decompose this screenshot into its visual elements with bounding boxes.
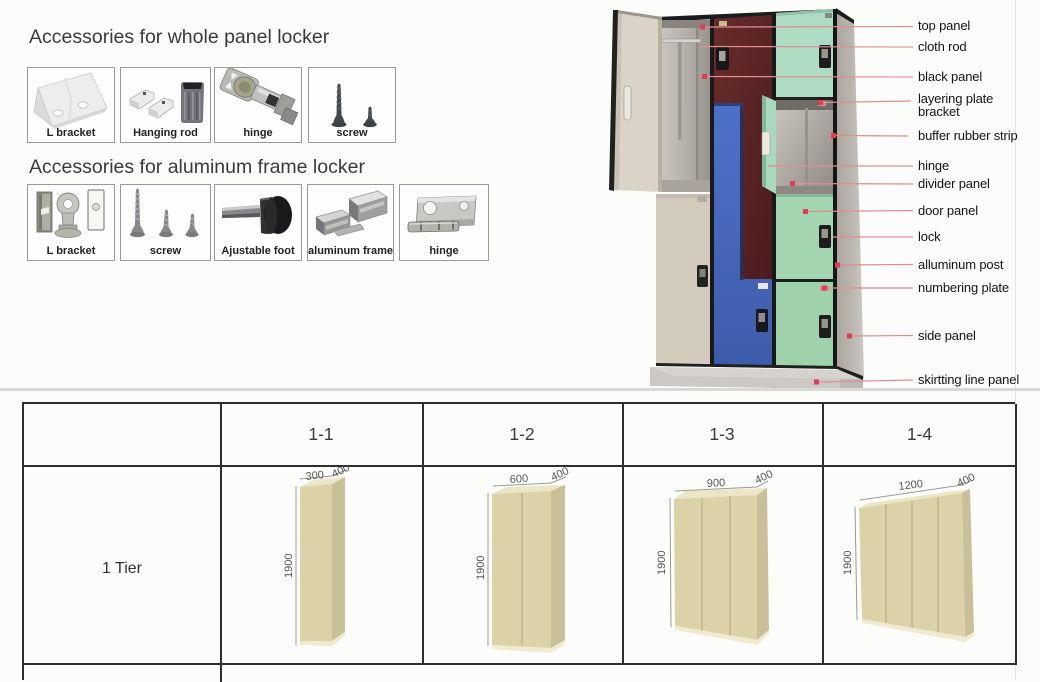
svg-text:1900: 1900 bbox=[842, 551, 854, 575]
svg-text:1900: 1900 bbox=[283, 554, 295, 578]
svg-text:1900: 1900 bbox=[656, 551, 668, 575]
svg-text:400: 400 bbox=[549, 465, 571, 484]
svg-text:300: 300 bbox=[305, 469, 325, 483]
svg-text:1900: 1900 bbox=[475, 556, 487, 580]
svg-text:400: 400 bbox=[753, 468, 775, 487]
svg-text:900: 900 bbox=[707, 477, 726, 490]
svg-text:600: 600 bbox=[509, 473, 528, 486]
svg-text:400: 400 bbox=[955, 471, 977, 489]
